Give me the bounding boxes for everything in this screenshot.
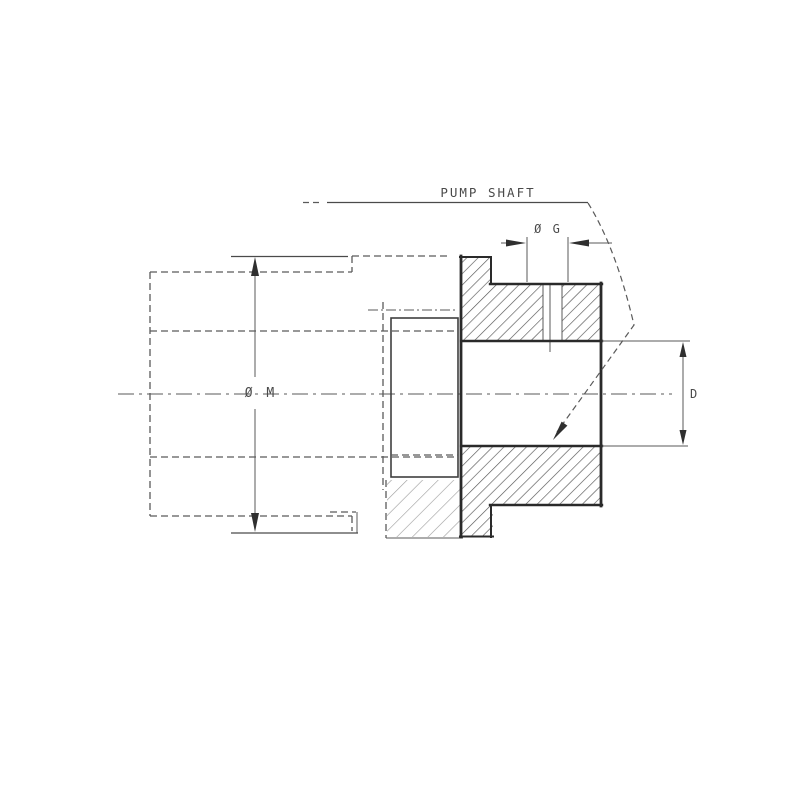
dim-m-arrow-top	[251, 257, 259, 276]
hatch-top-wall-right	[562, 284, 602, 341]
dim-d-arrow-bottom	[680, 430, 687, 445]
d-label: D	[690, 387, 697, 401]
hatch-flange-rim-bottom	[461, 505, 493, 537]
technical-drawing: PUMP SHAFT Ø G Ø M D	[0, 0, 800, 800]
dia-m-label: Ø M	[245, 386, 277, 401]
dim-g-arrow-right	[569, 240, 589, 247]
dimension-m: Ø M	[231, 257, 358, 534]
drawing-page: PUMP SHAFT Ø G Ø M D	[0, 0, 800, 800]
hatch-top-wall-left	[461, 284, 543, 341]
hub-section-hatch	[461, 257, 602, 537]
dim-m-arrow-bottom	[251, 513, 259, 532]
dim-d-arrow-top	[680, 342, 687, 357]
gland-body-outline	[391, 318, 458, 477]
dim-g-arrow-left	[506, 240, 526, 247]
gland-section-hatch	[387, 480, 461, 537]
gland-sleeve	[368, 302, 463, 538]
hatch-bottom-wall	[461, 446, 602, 505]
leader-arrowhead	[553, 422, 567, 440]
hatch-flange-rim-top	[461, 257, 491, 284]
dimension-g: Ø G	[501, 222, 612, 282]
dia-g-label: Ø G	[534, 222, 562, 236]
pump-shaft-label: PUMP SHAFT	[440, 185, 535, 200]
